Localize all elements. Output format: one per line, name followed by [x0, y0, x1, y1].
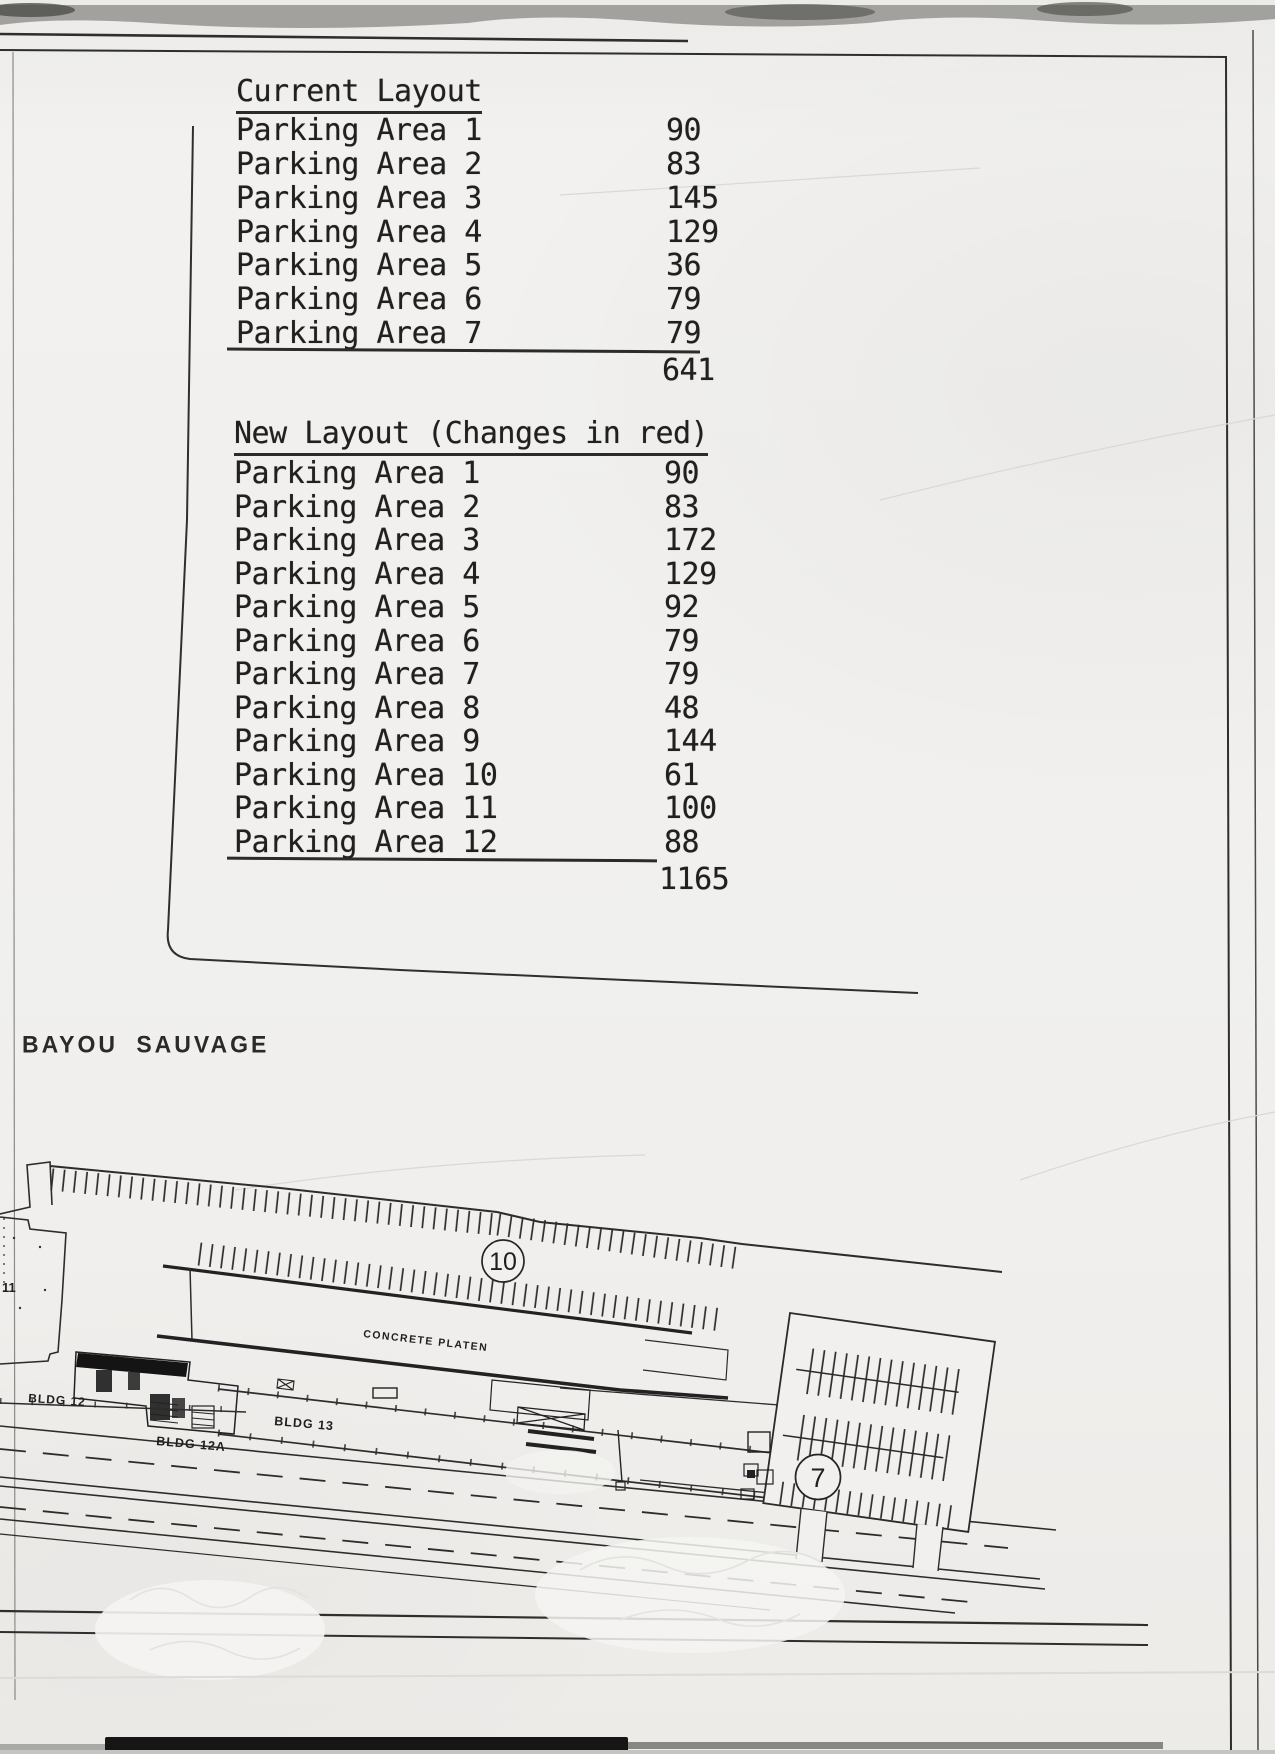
- bldg13-band: [218, 1388, 792, 1498]
- row-value: 129: [666, 217, 719, 249]
- table-row: Parking Area 5 92: [234, 592, 794, 625]
- row-value: 79: [664, 626, 699, 658]
- table-row: Parking Area 1 90: [236, 115, 796, 148]
- row-value: 100: [664, 793, 717, 825]
- scanner-bottom-shadow: [0, 1672, 1275, 1754]
- area10-number: 10: [489, 1248, 517, 1276]
- row-value: 144: [664, 726, 717, 758]
- row-value: 83: [666, 149, 701, 181]
- row-label: Parking Area 4: [236, 217, 482, 249]
- scanned-parking-document: 10 11: [0, 0, 1275, 1754]
- row-value: 79: [666, 284, 701, 316]
- table-row: Parking Area 2 83: [234, 492, 794, 525]
- row-value: 90: [664, 458, 699, 490]
- new-total: 1165: [659, 864, 729, 896]
- row-label: Parking Area 6: [234, 626, 480, 658]
- table-row: Parking Area 3 145: [236, 183, 796, 216]
- current-layout-title: Current Layout: [236, 76, 482, 114]
- area7-number: 7: [810, 1463, 825, 1493]
- new-layout-title: New Layout (Changes in red): [234, 418, 708, 456]
- row-label: Parking Area 7: [236, 318, 482, 350]
- row-value: 88: [664, 827, 699, 859]
- row-label: Parking Area 3: [234, 525, 480, 557]
- bldg12-cluster: [74, 1352, 238, 1434]
- parking-area7-block: [763, 1313, 995, 1532]
- row-label: Parking Area 2: [236, 149, 482, 181]
- table-row: Parking Area 12 88: [234, 827, 794, 860]
- row-label: Parking Area 1: [234, 458, 480, 490]
- parking-row10-left-notch: [0, 1162, 52, 1214]
- current-total: 641: [662, 355, 715, 387]
- table-row: Parking Area 7 79: [236, 318, 796, 351]
- bldg12a-label: BLDG 12A: [156, 1434, 227, 1454]
- parking-area-7-marker: 7: [796, 1455, 841, 1500]
- table-row: Parking Area 2 83: [236, 149, 796, 182]
- table-row: Parking Area 5 36: [236, 250, 796, 283]
- area11-partial-label: 11: [2, 1280, 16, 1295]
- table-row: Parking Area 6 79: [236, 284, 796, 317]
- scanner-top-shadow: [0, 2, 1275, 28]
- table-row: Parking Area 1 90: [234, 458, 794, 491]
- row-value: 92: [664, 592, 699, 624]
- table-row: Parking Area 10 61: [234, 760, 794, 793]
- row-value: 61: [664, 760, 699, 792]
- parking-row10-upper-ticks: [46, 1168, 741, 1269]
- table-row: Parking Area 9 144: [234, 726, 794, 759]
- row-label: Parking Area 5: [236, 250, 482, 282]
- row-value: 90: [666, 115, 701, 147]
- concrete-platen-label: CONCRETE PLATEN: [363, 1328, 489, 1354]
- row-value: 129: [664, 559, 717, 591]
- row-value: 172: [664, 525, 717, 557]
- row-value: 36: [666, 250, 701, 282]
- row-value: 79: [666, 318, 701, 350]
- table-row: Parking Area 7 79: [234, 659, 794, 692]
- row-label: Parking Area 7: [234, 659, 480, 691]
- parking-area-10-marker: 10: [482, 1240, 524, 1282]
- row-label: Parking Area 9: [234, 726, 480, 758]
- row-value: 79: [664, 659, 699, 691]
- table-row: Parking Area 3 172: [234, 525, 794, 558]
- parking-row10-upper-line: [50, 1166, 1002, 1272]
- table-row: Parking Area 4 129: [236, 217, 796, 250]
- table-row: Parking Area 11 100: [234, 793, 794, 826]
- row-label: Parking Area 10: [234, 760, 497, 792]
- row-label: Parking Area 1: [236, 115, 482, 147]
- bldg12-label: BLDG 12: [28, 1391, 87, 1409]
- table-row: Parking Area 8 48: [234, 693, 794, 726]
- row-label: Parking Area 6: [236, 284, 482, 316]
- table-row: Parking Area 6 79: [234, 626, 794, 659]
- row-label: Parking Area 2: [234, 492, 480, 524]
- row-label: Parking Area 5: [234, 592, 480, 624]
- row-value: 83: [664, 492, 699, 524]
- bldg13-label: BLDG 13: [274, 1414, 335, 1433]
- table-row: Parking Area 4 129: [234, 559, 794, 592]
- row-label: Parking Area 3: [236, 183, 482, 215]
- row-label: Parking Area 11: [234, 793, 497, 825]
- row-value: 48: [664, 693, 699, 725]
- row-value: 145: [666, 183, 719, 215]
- row-label: Parking Area 4: [234, 559, 480, 591]
- row-label: Parking Area 8: [234, 693, 480, 725]
- row-label: Parking Area 12: [234, 827, 497, 859]
- bayou-sauvage-label: BAYOU SAUVAGE: [22, 1030, 269, 1058]
